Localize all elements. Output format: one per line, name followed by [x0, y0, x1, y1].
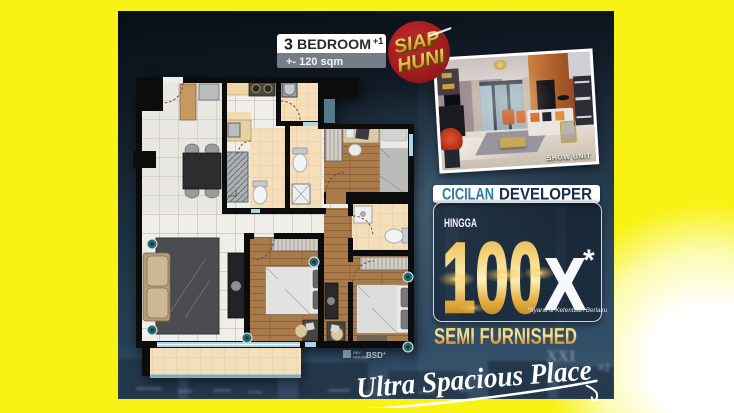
- svg-text:+- 120 sqm: +- 120 sqm: [286, 56, 343, 68]
- svg-text:BEDROOM: BEDROOM: [297, 37, 371, 53]
- svg-text:*: *: [583, 244, 595, 277]
- svg-text:DEVELOPER: DEVELOPER: [499, 185, 592, 203]
- svg-text:CICILAN: CICILAN: [442, 185, 494, 203]
- svg-text:SEMI FURNISHED: SEMI FURNISHED: [434, 323, 577, 349]
- svg-text:3: 3: [284, 37, 293, 54]
- svg-text:Ultra Spacious Place: Ultra Spacious Place: [355, 354, 593, 404]
